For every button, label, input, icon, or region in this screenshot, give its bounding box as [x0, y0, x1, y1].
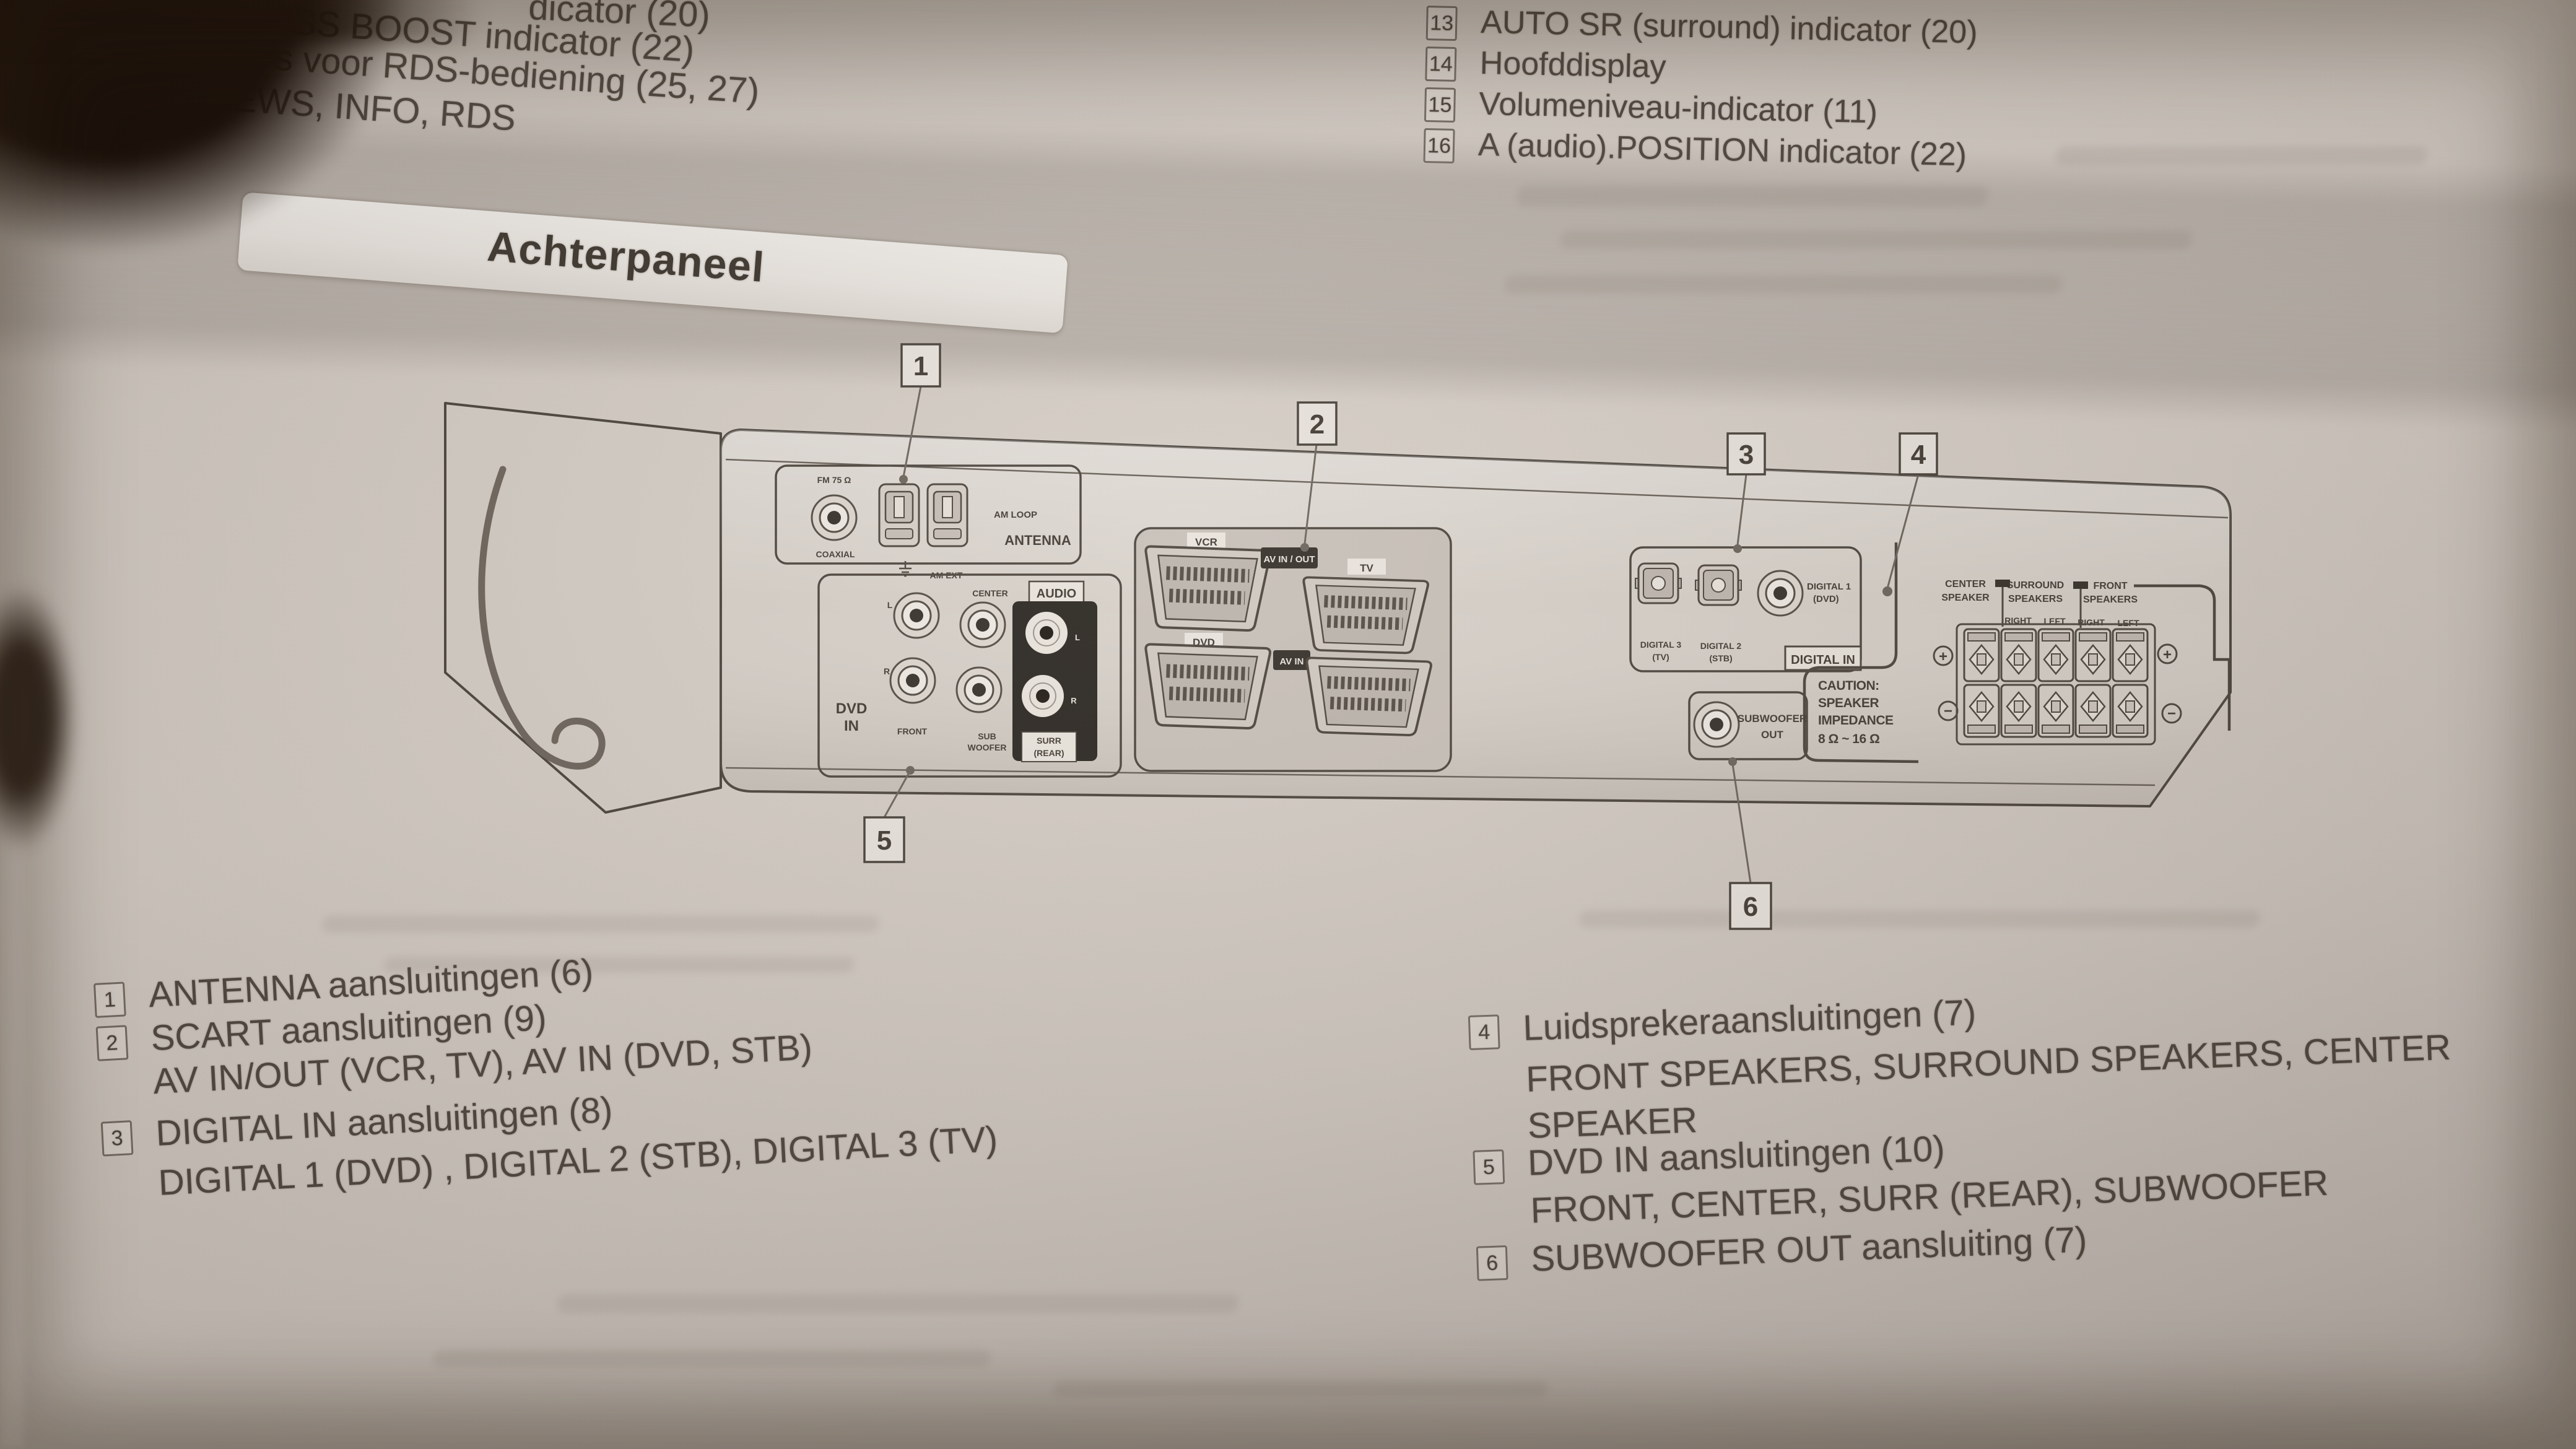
front-speakers-label-line2: SPEAKERS [2083, 594, 2138, 605]
speaker-terminal [2113, 685, 2147, 737]
digital1-label-line1: DIGITAL 1 [1807, 581, 1851, 592]
caution-line3: IMPEDANCE [1818, 713, 1894, 728]
item-number-badge: 2 [96, 1025, 129, 1061]
page-edge-highlight [0, 805, 24, 1449]
item-number-badge: 3 [101, 1120, 134, 1157]
am-terminal [928, 484, 967, 546]
tv-label: TV [1360, 562, 1373, 574]
label-tie-bar [2073, 581, 2088, 589]
vcr-label: VCR [1195, 536, 1217, 548]
speaker-terminal [1964, 685, 1999, 737]
antenna-label: ANTENNA [1004, 533, 1071, 548]
optical-digital3-connector [1635, 563, 1681, 603]
coaxial-label: COAXIAL [816, 549, 855, 559]
am-terminal [879, 484, 919, 546]
optical-digital2-connector [1695, 565, 1741, 605]
surr-rear-label-line2: (REAR) [1034, 748, 1064, 758]
item-number-badge: 5 [1473, 1149, 1505, 1185]
speaker-terminal [2076, 629, 2110, 681]
front-l-label: L [887, 600, 893, 610]
dvd-center-jack [960, 603, 1005, 647]
caution-line4: 8 Ω ~ 16 Ω [1818, 732, 1879, 746]
digital3-label-line2: (TV) [1652, 652, 1669, 662]
scart-section: VCR AV IN / OUT TV DVD AV IN STB [1135, 528, 1451, 771]
pos-left-label: LEFT [2118, 618, 2139, 628]
digital3-label-line1: DIGITAL 3 [1640, 640, 1682, 650]
front-col-label: FRONT [897, 726, 928, 736]
surr-l-label: L [1075, 633, 1080, 642]
callout-2: 2 [1310, 409, 1325, 440]
speaker-terminal [2113, 629, 2147, 681]
digital1-coax-jack [1758, 571, 1803, 616]
fm-75-label: FM 75 Ω [817, 475, 851, 485]
scart-vcr-connector [1143, 546, 1270, 631]
digital-in-label: DIGITAL IN [1791, 653, 1855, 667]
surr-r-label: R [1071, 696, 1077, 705]
center-speaker-label-line2: SPEAKER [1941, 593, 1990, 603]
manual-page-photo: dicator (20) SS BOOST indicator (22) Ind… [0, 0, 2576, 1449]
callout-3: 3 [1739, 440, 1754, 470]
subwoofer-out-jack [1694, 702, 1739, 747]
dvd-front-r-jack [890, 658, 935, 703]
callout-5: 5 [877, 825, 892, 856]
dvd-in-label-line2: IN [844, 718, 859, 734]
center-speaker-label-line1: CENTER [1945, 579, 1986, 590]
audio-label: AUDIO [1037, 587, 1076, 601]
minus-sign: − [1944, 703, 1952, 720]
minus-sign: − [2167, 705, 2176, 722]
surr-rear-label-line1: SURR [1037, 736, 1061, 746]
speaker-terminal [1964, 629, 1999, 681]
plus-sign: + [1939, 648, 1947, 665]
center-label: CENTER [972, 588, 1008, 598]
sub-woofer-label-line1: SUB [978, 731, 996, 741]
scart-tv-connector [1301, 577, 1428, 653]
callout-4: 4 [1911, 440, 1926, 470]
item-number-badge: 4 [1468, 1014, 1500, 1050]
dvd-surr-l-jack [1025, 612, 1068, 654]
digital1-label-line2: (DVD) [1813, 594, 1839, 604]
item-number-badge: 1 [94, 981, 126, 1018]
caution-line2: SPEAKER [1818, 696, 1879, 710]
speaker-terminal [2001, 685, 2036, 737]
speaker-terminal [2039, 685, 2073, 737]
sub-woofer-label-line2: WOOFER [968, 742, 1007, 752]
pos-right-label: RIGHT [2078, 617, 2105, 627]
rear-panel-diagram: FM 75 Ω COAXIAL AM EXT AM LOOP ANTENNA A… [0, 0, 2576, 1449]
surround-speakers-label-line2: SPEAKERS [2008, 594, 2063, 604]
label-tie-bar [1995, 580, 2010, 587]
av-in-out-label: AV IN / OUT [1263, 554, 1315, 565]
speaker-terminal [2001, 629, 2036, 681]
front-speakers-label-line1: FRONT [2093, 581, 2127, 591]
callout-6: 6 [1743, 892, 1758, 922]
speaker-terminal [2076, 685, 2110, 737]
scart-dvd-connector [1143, 644, 1270, 729]
scart-stb-connector [1304, 658, 1431, 736]
plus-sign: + [2163, 646, 2172, 663]
am-loop-label: AM LOOP [994, 510, 1037, 520]
speaker-terminal [2039, 629, 2073, 681]
callout-1: 1 [913, 351, 928, 381]
av-in-label: AV IN [1280, 656, 1304, 667]
subwoofer-out-label-line2: OUT [1761, 729, 1784, 741]
item-number-badge: 6 [1476, 1245, 1508, 1281]
digital2-label-line1: DIGITAL 2 [1700, 641, 1742, 651]
dvd-front-l-jack [894, 593, 939, 638]
dvd-surr-r-jack [1022, 675, 1064, 717]
surround-speakers-label-line1: SURROUND [2007, 580, 2064, 591]
fm-coaxial-jack [812, 495, 856, 540]
subwoofer-out-label-line1: SUBWOOFER [1738, 713, 1807, 724]
front-r-label: R [884, 666, 890, 676]
dvd-subwoofer-jack [957, 668, 1001, 712]
digital2-label-line2: (STB) [1709, 653, 1732, 663]
dvd-in-label-line1: DVD [836, 700, 868, 717]
caution-line1: CAUTION: [1818, 679, 1879, 693]
